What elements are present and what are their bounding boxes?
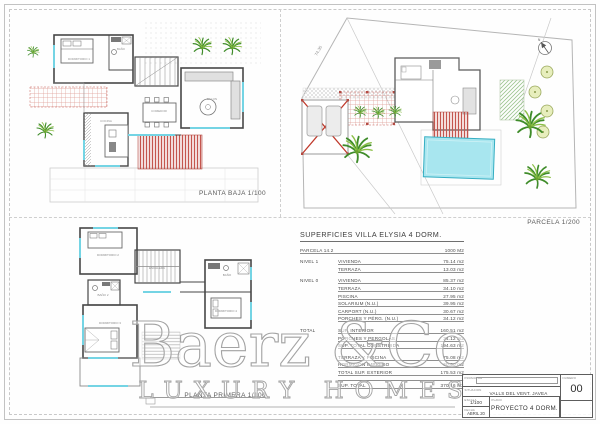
table-row: PISCINA27.95 m2 xyxy=(338,292,464,300)
table-row: SUP. TOTAL CONSTRUIDA194.63 m2 xyxy=(338,342,464,350)
car-icon xyxy=(307,106,322,136)
room-label-bano: BAÑO xyxy=(117,46,126,51)
promotor-value-box xyxy=(476,377,558,384)
swimming-pool xyxy=(423,137,494,179)
table-section: SUP. TOTAL370.16 M2 xyxy=(300,380,464,389)
fecha-value: ABRIL 20 xyxy=(463,411,489,416)
planta-primera-drawing: DORMITORIO 2 ESCALERA BAÑO 2 DORMITORIO … xyxy=(18,212,273,407)
room-label-dorm2: DORMITORIO 2 xyxy=(97,253,119,257)
bed-icon xyxy=(85,328,119,352)
table-section: PARCELA 14.21000 M2 xyxy=(300,246,464,254)
title-block-field-escala: ESCALA 1/100 xyxy=(463,397,490,407)
table-row: NIVEL 1VIVIENDA75.14 m2 xyxy=(338,258,464,266)
table-row: CARPORT (N.U.)30.67 m2 xyxy=(338,307,464,315)
planta-baja-label: PLANTA BAJA 1/100 xyxy=(158,190,266,197)
palm-tree-icon xyxy=(37,122,55,138)
title-block-field-fecha: FECHA ABRIL 20 xyxy=(463,407,490,417)
parcela-drawing: 74.35 xyxy=(283,10,595,222)
title-block-field-promotor: PROMOTOR xyxy=(463,375,560,387)
table-row: PORCHES Y PÉRG. (N.U.)34.12 m2 xyxy=(338,315,464,323)
room-label-comedor: COMEDOR xyxy=(151,109,168,113)
coffee-table-icon xyxy=(200,99,216,115)
sheet-number: 00 xyxy=(561,383,592,395)
surfaces-table: SUPERFICIES VILLA ELYSIA 4 DORM. PARCELA… xyxy=(300,230,464,393)
title-block-field-numero: NUMERO 00 xyxy=(560,375,592,401)
pergola-louvers xyxy=(433,112,468,138)
surfaces-table-title: SUPERFICIES VILLA ELYSIA 4 DORM. xyxy=(300,230,464,242)
bed-icon xyxy=(88,232,122,248)
palm-tree-icon xyxy=(525,164,552,188)
room-label-dorm3: DORMITORIO 3 xyxy=(99,321,121,325)
table-row: TOTAL SUP. EXTERIOR175.53 m2 xyxy=(338,368,464,376)
divider-vertical xyxy=(280,9,281,217)
table-section: NIVEL 1VIVIENDA75.14 m2 TERRAZA13.03 m2 xyxy=(300,258,464,273)
room-label-dorm4: DORMITORIO 4 xyxy=(215,309,237,313)
plano-label: PLANO xyxy=(492,398,502,402)
table-section: NIVEL 0VIVIENDA85.37 m2 TERRAZA34.10 m2 … xyxy=(300,277,464,323)
compass-north-label: N xyxy=(538,38,541,42)
table-row: TERRAZA34.10 m2 xyxy=(338,284,464,292)
escala-value: 1/100 xyxy=(463,401,489,406)
bath-fixtures xyxy=(111,37,131,55)
numero-label: NUMERO xyxy=(563,376,577,380)
boundary-dimension: 74.35 xyxy=(314,44,324,56)
parcela-label: PARCELA 1/200 xyxy=(495,219,580,226)
room-label-dorm1: DORMITORIO 1 xyxy=(68,57,90,61)
carport xyxy=(301,99,349,155)
table-section: TOTALSUP. INTERIOR160.51 m2 PORCHES Y PE… xyxy=(300,326,464,349)
table-row-grand-total: SUP. TOTAL370.16 M2 xyxy=(338,380,464,389)
room-label-bano: BAÑO xyxy=(223,272,232,277)
room-label-bano2: BAÑO 2 xyxy=(97,292,108,297)
table-row: NIVEL 0VIVIENDA85.37 m2 xyxy=(338,277,464,285)
table-section: TERRAZA Y PISCINA75.08 m2 HORMIGON IMPRE… xyxy=(300,353,464,376)
title-block-field-empty xyxy=(560,401,592,417)
roof-terrace-stripes xyxy=(142,332,180,359)
compass-icon: N xyxy=(538,38,552,55)
bath-fixtures xyxy=(429,60,441,69)
pergola-grid xyxy=(30,87,107,107)
table-row: HORMIGON IMPRESO60.50 m2 xyxy=(338,361,464,369)
situacion-value: VALLS DEL VENT. JAVEA xyxy=(477,391,560,396)
bed-icon xyxy=(211,298,241,318)
title-block-field-plano: PLANO PROYECTO 4 DORM. xyxy=(490,397,560,417)
drawing-sheet: DORMITORIO 1 BAÑO SALON COMEDOR COCINA P… xyxy=(0,0,600,424)
table-row: PORCHES Y PERGOLAS34.12 m2 xyxy=(338,334,464,342)
room-label-salon: SALON xyxy=(207,97,217,101)
label-strike-line xyxy=(150,397,266,398)
table-row: TERRAZA13.03 m2 xyxy=(338,265,464,273)
table-row: PARCELA 14.21000 M2 xyxy=(300,246,464,254)
title-block: PROMOTOR NUMERO 00 SITUACION VALLS DEL V… xyxy=(462,374,593,418)
table-row: TERRAZA Y PISCINA75.08 m2 xyxy=(338,353,464,361)
plano-value: PROYECTO 4 DORM. xyxy=(490,405,559,412)
house-footprint xyxy=(395,58,480,138)
planta-baja-drawing: DORMITORIO 1 BAÑO SALON COMEDOR COCINA xyxy=(25,12,270,207)
room-label-cocina: COCINA xyxy=(100,119,112,123)
palm-tree-icon xyxy=(27,46,40,57)
table-row: TOTALSUP. INTERIOR160.51 m2 xyxy=(338,326,464,334)
room-label-escalera: ESCALERA xyxy=(149,266,165,270)
title-block-field-situacion: SITUACION VALLS DEL VENT. JAVEA xyxy=(463,387,560,397)
pergola-louvers xyxy=(138,135,202,169)
sofa-icon xyxy=(463,88,476,114)
table-row: SOLARIUM (N.U.)39.95 m2 xyxy=(338,300,464,308)
car-icon xyxy=(326,106,341,136)
